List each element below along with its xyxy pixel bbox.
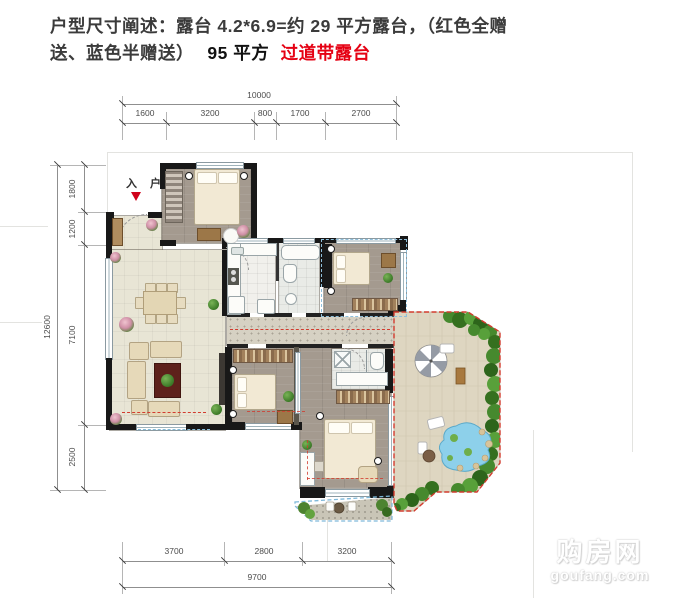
gift-red-line-bed4-h: [307, 478, 383, 479]
ref-line: [632, 152, 633, 452]
bed-master: [194, 169, 240, 225]
bathtub: [281, 245, 320, 260]
outdoor-table: [423, 450, 435, 462]
dim-top-seg4: 1700: [289, 108, 312, 118]
dim-line-left-total: [57, 165, 58, 490]
dim-top-total: 10000: [245, 90, 273, 100]
fridge: [228, 296, 245, 314]
dim-left-seg4: 2500: [67, 446, 77, 469]
plant: [211, 404, 222, 415]
toilet: [283, 264, 297, 283]
gift-red-line-bed4-v: [307, 440, 308, 480]
ref-line: [107, 152, 633, 153]
dim-line-top-total: [122, 104, 397, 105]
ref-line: [0, 322, 48, 323]
dim-bottom-total: 9700: [246, 572, 269, 582]
lounge-chair: [440, 344, 454, 353]
wardrobe: [336, 390, 390, 404]
dim-line-left-segments: [84, 165, 85, 490]
dim-bottom-seg3: 3200: [336, 546, 359, 556]
sofa: [127, 361, 146, 399]
entry-label: 入 户: [126, 175, 166, 191]
ensuite-toilet: [370, 352, 384, 370]
ref-line: [0, 226, 48, 227]
terrace: [388, 306, 506, 518]
desk: [277, 410, 293, 424]
title-line2-prefix: 送、蓝色半赠送）: [50, 43, 194, 63]
kitchen-sink: [231, 247, 244, 255]
plant: [110, 252, 121, 263]
ref-line: [327, 520, 328, 562]
sofa: [148, 401, 180, 417]
watermark-name: 购房网: [544, 538, 656, 567]
plant: [208, 299, 219, 310]
dim-top-seg2: 3200: [199, 108, 222, 118]
bath-sink: [285, 293, 297, 305]
dim-top-seg3: 800: [256, 108, 274, 118]
vanity-counter: [336, 372, 388, 386]
entry-arrow-icon: [131, 192, 141, 201]
half-gift-blue-line-living: [138, 429, 210, 430]
plant: [237, 225, 250, 238]
dim-top-seg5: 2700: [350, 108, 373, 118]
floorplan-page: 户型尺寸阐述：露台 4.2*6.9=约 29 平方露台，（红色全赠 送、蓝色半赠…: [0, 0, 686, 600]
plant: [119, 317, 134, 332]
dim-top-seg1: 1600: [134, 108, 157, 118]
plant: [283, 391, 294, 402]
wardrobe: [165, 171, 183, 223]
dim-line-bottom-segments: [122, 561, 392, 562]
title-highlight: 过道带露台: [275, 43, 371, 63]
shoe-cabinet: [112, 218, 123, 246]
bench: [456, 368, 465, 384]
gift-red-line-bed3: [247, 411, 305, 412]
coffee-table: [154, 363, 181, 398]
dining-table: [143, 291, 177, 315]
title-area-value: 95 平方: [199, 43, 269, 63]
dim-left-total: 12600: [42, 313, 52, 341]
ref-line: [533, 430, 534, 598]
sofa: [150, 341, 182, 358]
half-gift-blue-outline-bedroom2: [321, 239, 407, 317]
bench: [197, 228, 221, 241]
chair: [314, 461, 324, 472]
dim-left-seg2: 1200: [67, 218, 77, 241]
dim-left-seg3: 7100: [67, 324, 77, 347]
dim-line-bottom-total: [122, 587, 392, 588]
stove: [228, 268, 239, 285]
plant: [110, 413, 122, 425]
watermark-domain: goufang.com: [544, 567, 656, 583]
bed-bedroom3: [234, 374, 276, 410]
tv-console: [219, 353, 225, 405]
title-line1: 户型尺寸阐述：露台 4.2*6.9=约 29 平方露台，（红色全赠: [50, 16, 508, 36]
dim-line-top-segments: [122, 123, 397, 124]
page-title: 户型尺寸阐述：露台 4.2*6.9=约 29 平方露台，（红色全赠 送、蓝色半赠…: [50, 13, 658, 67]
dim-bottom-seg1: 3700: [163, 546, 186, 556]
dim-left-seg1: 1800: [67, 178, 77, 201]
gift-red-line-living: [122, 412, 206, 413]
wardrobe: [233, 349, 293, 363]
ref-line: [107, 152, 108, 214]
shower: [334, 351, 351, 368]
kitchen-cabinet: [257, 299, 275, 314]
watermark: 购房网 goufang.com: [544, 538, 656, 583]
dim-bottom-seg2: 2800: [253, 546, 276, 556]
room-corridor: [227, 316, 394, 345]
gift-red-line-corridor: [230, 329, 390, 330]
balcony-overlay: [294, 494, 396, 524]
plant: [146, 219, 158, 231]
armchair: [129, 342, 149, 360]
armchair: [358, 466, 378, 483]
